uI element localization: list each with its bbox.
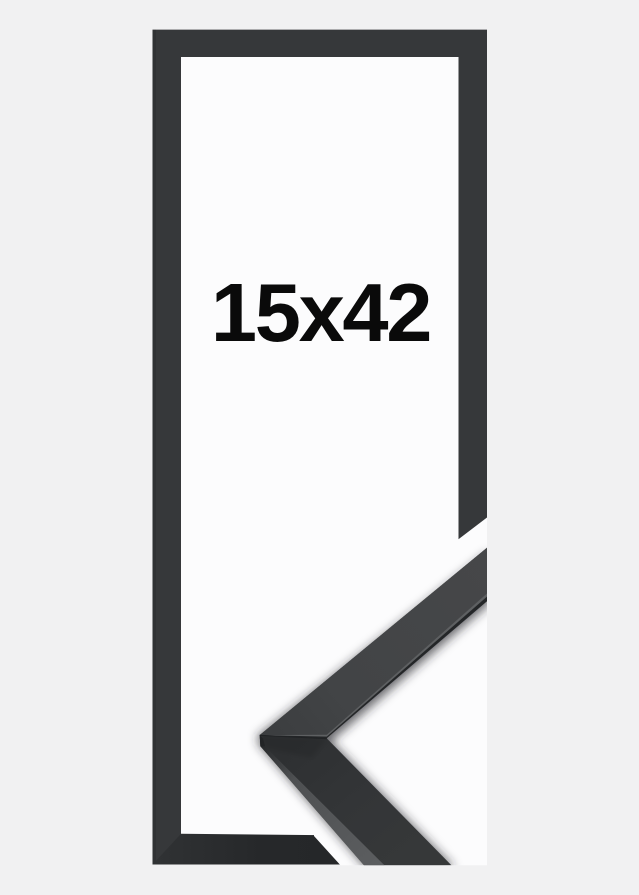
svg-text:15x42: 15x42 — [211, 266, 430, 359]
